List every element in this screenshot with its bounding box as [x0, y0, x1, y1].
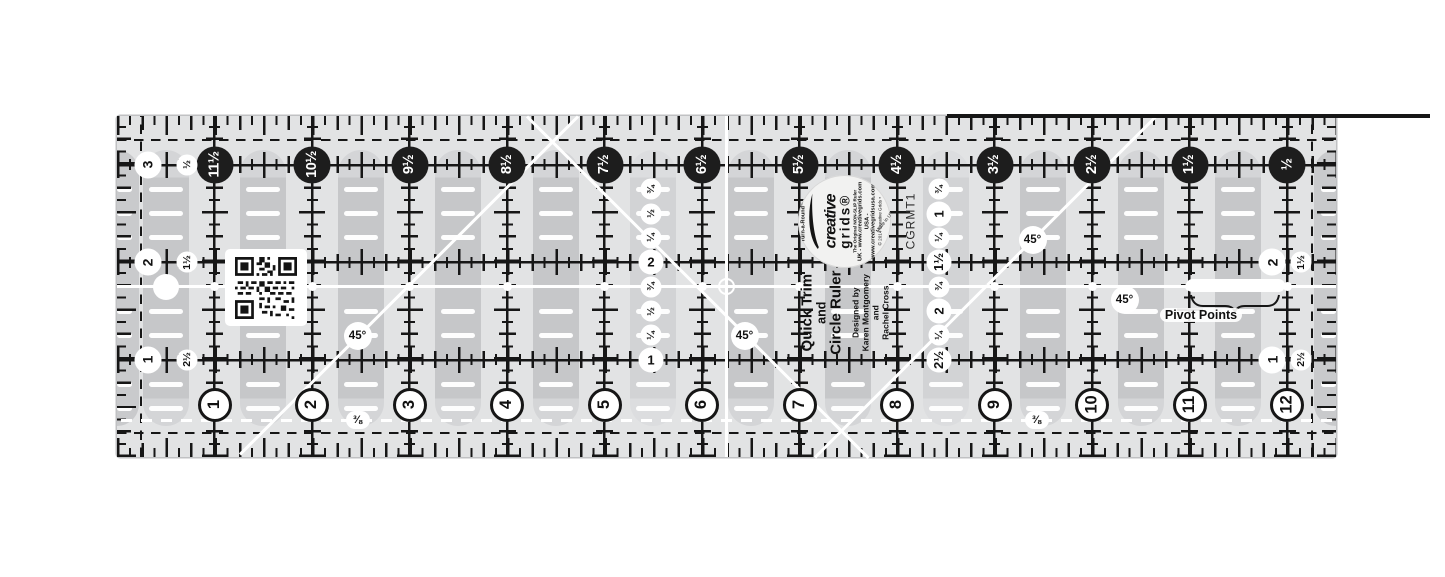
top-scale-number-label: 2½ [1084, 155, 1100, 174]
grip-slot [1026, 406, 1060, 411]
top-scale-number-label: 5½ [791, 155, 807, 174]
model-number: CGRMT1 [875, 186, 945, 256]
top-scale-number-label: 1½ [1181, 155, 1197, 174]
angle-45-label-label: 45° [1024, 234, 1041, 246]
bottom-scale-number-label: 11 [1180, 396, 1199, 413]
top-scale-number: ½ [1269, 146, 1306, 183]
bottom-scale-number: 2 [295, 388, 329, 422]
bottom-scale-number-label: 1 [205, 400, 224, 409]
top-scale-number: 1½ [1171, 146, 1208, 183]
left-edge-number-label: 2 [139, 258, 155, 266]
grip-slot [1221, 187, 1255, 192]
grip-slot [1124, 235, 1158, 240]
grip-slot [734, 406, 768, 411]
right-edge-number-label: 2 [1264, 258, 1280, 266]
qr-code [225, 249, 307, 326]
designer-line1: Designed by [849, 247, 859, 379]
grip-slot [441, 187, 475, 192]
grip-slot [1221, 235, 1255, 240]
left-edge-complement-label: ½ [180, 160, 192, 169]
grip-slot [539, 235, 573, 240]
grip-slot [1026, 333, 1060, 338]
grip-slot [1026, 382, 1060, 387]
grip-slot [734, 382, 768, 387]
angle-45-label-label: 45° [349, 330, 366, 342]
grip-slot [149, 382, 183, 387]
grip-slot [344, 382, 378, 387]
grip-slot [149, 333, 183, 338]
right-fraction-marker-label: ¾ [933, 282, 945, 291]
top-scale-number-label: 6½ [694, 155, 710, 174]
model-number-text: CGRMT1 [903, 193, 917, 250]
top-scale-number: 8½ [489, 146, 526, 183]
grip-slot [539, 406, 573, 411]
top-scale-number: 9½ [391, 146, 428, 183]
left-edge-number-label: 1 [139, 356, 155, 364]
grip-slot [539, 333, 573, 338]
grip-slot [149, 187, 183, 192]
designer-line2: Karen Montgomery [860, 247, 870, 379]
left-fraction-marker-label: 1 [647, 352, 654, 367]
pivot-dot [698, 282, 707, 291]
bottom-scale-number: 9 [978, 388, 1012, 422]
grip-slot [1124, 382, 1158, 387]
black-diagonal-45-line [947, 114, 1430, 118]
bottom-scale-number: 5 [588, 388, 622, 422]
bottom-scale-number: 4 [490, 388, 524, 422]
pivot-hole [153, 274, 179, 300]
left-edge-complement-label: 2½ [180, 352, 192, 367]
grip-slot [441, 382, 475, 387]
bottom-scale-number-label: 5 [595, 400, 614, 409]
top-scale-number-label: 3½ [986, 155, 1002, 174]
left-fraction-marker-label: ¼ [645, 331, 657, 340]
grip-slot [344, 406, 378, 411]
grip-slot [1221, 211, 1255, 216]
right-edge-number: 1 [1259, 346, 1286, 373]
top-scale-number-label: ½ [1279, 159, 1295, 171]
grip-slot [344, 235, 378, 240]
left-edge-number: 1 [134, 346, 161, 373]
three-eighths-label: ⅜ [1025, 411, 1049, 429]
right-edge-complement-label: 1½ [1295, 255, 1307, 270]
grip-slot [441, 406, 475, 411]
grip-slot [734, 309, 768, 314]
left-fraction-marker: ¼ [641, 227, 662, 248]
left-edge-complement-label: 1½ [180, 255, 192, 270]
grip-slot [636, 382, 670, 387]
bottom-scale-number-label: 6 [693, 400, 712, 409]
pivot-points-label: Pivot Points [1140, 306, 1262, 324]
bottom-scale-number: 10 [1075, 388, 1109, 422]
bottom-scale-number-label: 4 [498, 400, 517, 409]
bottom-scale-number-label: 3 [400, 400, 419, 409]
designer-line3: and [870, 247, 880, 379]
bottom-scale-number: 8 [880, 388, 914, 422]
angle-45-label-label: 45° [736, 330, 753, 342]
left-fraction-marker: ½ [641, 203, 662, 224]
left-fraction-marker: 1 [639, 347, 664, 372]
top-scale-number-label: 7½ [596, 155, 612, 174]
grip-slot [246, 211, 280, 216]
grip-slot [1124, 333, 1158, 338]
pivot-dot [1088, 282, 1097, 291]
grip-slot [734, 211, 768, 216]
left-edge-complement: 1½ [176, 252, 197, 273]
grip-slot [1221, 333, 1255, 338]
grip-slot [441, 211, 475, 216]
top-scale-number: 6½ [684, 146, 721, 183]
grip-slot [734, 187, 768, 192]
grip-slot [246, 382, 280, 387]
grip-slot [636, 406, 670, 411]
left-edge-complement: 2½ [176, 349, 197, 370]
right-fraction-marker-label: 2 [931, 307, 946, 314]
top-scale-number-label: 10½ [304, 151, 320, 178]
right-edge-number-label: 1 [1264, 356, 1280, 364]
bottom-scale-number: 3 [393, 388, 427, 422]
bottom-scale-number-label: 12 [1277, 396, 1296, 414]
grip-slot [344, 309, 378, 314]
product-title-line2: and [815, 247, 828, 379]
grip-slot [929, 406, 963, 411]
angle-45-label: 45° [731, 322, 759, 350]
left-fraction-marker: ¾ [641, 179, 662, 200]
angle-45-label: 45° [1019, 226, 1047, 254]
left-fraction-marker-label: ¼ [645, 234, 657, 243]
grip-slot [1026, 187, 1060, 192]
left-fraction-marker: ¼ [641, 325, 662, 346]
grip-slot [1026, 309, 1060, 314]
top-scale-number: 3½ [976, 146, 1013, 183]
angle-45-label-label: 45° [1116, 294, 1133, 306]
bottom-scale-number: 1 [198, 388, 232, 422]
top-scale-number-label: 8½ [499, 155, 515, 174]
grip-slot [246, 235, 280, 240]
left-fraction-marker-label: ¾ [645, 185, 657, 194]
quilting-ruler: Pivot Points Turn-a-Round™ creative grid… [117, 116, 1336, 457]
grip-slot [344, 211, 378, 216]
grip-slot [246, 333, 280, 338]
grip-slot [344, 187, 378, 192]
product-title-line3: Circle Ruler [828, 247, 844, 379]
pivot-points-highlight [1186, 279, 1285, 293]
grip-slot [149, 211, 183, 216]
left-fraction-marker: ¾ [641, 276, 662, 297]
grip-slot [929, 382, 963, 387]
right-fraction-marker: 2½ [927, 347, 952, 372]
bottom-scale-number: 12 [1270, 388, 1304, 422]
left-edge-number: 3 [134, 151, 161, 178]
pivot-dot [503, 282, 512, 291]
bottom-scale-number-label: 10 [1082, 396, 1101, 414]
right-fraction-marker: 2 [927, 299, 952, 324]
angle-45-label: 45° [1111, 286, 1139, 314]
bottom-scale-number: 11 [1173, 388, 1207, 422]
pivot-points-text: Pivot Points [1160, 308, 1242, 322]
grip-slot [149, 406, 183, 411]
top-scale-number-label: 9½ [401, 155, 417, 174]
angle-45-label: 45° [344, 322, 372, 350]
three-eighths-label: ⅜ [346, 411, 370, 429]
top-scale-number: 11½ [196, 146, 233, 183]
grip-slot [539, 309, 573, 314]
right-fraction-marker-label: 2½ [931, 351, 946, 369]
grip-slot [1124, 406, 1158, 411]
left-fraction-marker-label: ½ [645, 209, 657, 218]
top-scale-number-label: 4½ [889, 155, 905, 174]
right-fraction-marker-label: ¼ [933, 331, 945, 340]
left-fraction-marker: ½ [641, 301, 662, 322]
right-edge-complement: 1½ [1291, 252, 1312, 273]
left-fraction-marker-label: 2 [647, 255, 654, 270]
left-edge-number-label: 3 [139, 161, 155, 169]
left-fraction-marker: 2 [639, 250, 664, 275]
grip-slot [441, 333, 475, 338]
product-photo: Pivot Points Turn-a-Round™ creative grid… [0, 0, 1445, 577]
left-edge-complement: ½ [176, 154, 197, 175]
top-scale-number: 2½ [1074, 146, 1111, 183]
bottom-scale-number-label: 8 [888, 400, 907, 409]
grip-slot [246, 187, 280, 192]
right-fraction-marker: ¼ [929, 325, 950, 346]
qr-code-icon [234, 257, 298, 319]
product-title-line1: Quick Trim [799, 247, 815, 379]
grip-slot [149, 309, 183, 314]
designer-line4: Rachel Cross [880, 247, 890, 379]
bottom-scale-number: 6 [685, 388, 719, 422]
grip-slot [441, 309, 475, 314]
grip-slot [1221, 406, 1255, 411]
top-scale-number: 10½ [294, 146, 331, 183]
grip-slot [539, 187, 573, 192]
right-edge-number: 2 [1259, 249, 1286, 276]
pivot-dot [308, 282, 317, 291]
right-edge-complement-label: 2½ [1295, 352, 1307, 367]
grip-slot [539, 211, 573, 216]
bottom-scale-number-label: 9 [985, 400, 1004, 409]
top-scale-number: 7½ [586, 146, 623, 183]
right-fraction-marker: ¾ [929, 276, 950, 297]
left-edge-number: 2 [134, 249, 161, 276]
bottom-scale-number-label: 7 [790, 400, 809, 409]
bottom-scale-number: 7 [783, 388, 817, 422]
left-fraction-marker-label: ¾ [645, 282, 657, 291]
product-title-block: Quick Trim and Circle Ruler Designed by … [774, 242, 915, 383]
grip-slot [149, 235, 183, 240]
grip-slot [246, 406, 280, 411]
grip-slot [539, 382, 573, 387]
right-edge-complement: 2½ [1291, 349, 1312, 370]
grip-slot [1221, 382, 1255, 387]
top-scale-number-label: 11½ [206, 152, 222, 178]
grip-slot [1124, 211, 1158, 216]
left-fraction-marker-label: ½ [645, 307, 657, 316]
grip-slot [734, 235, 768, 240]
center-crosshair [718, 278, 735, 295]
grip-slot [1124, 187, 1158, 192]
bottom-scale-number-label: 2 [303, 400, 322, 409]
